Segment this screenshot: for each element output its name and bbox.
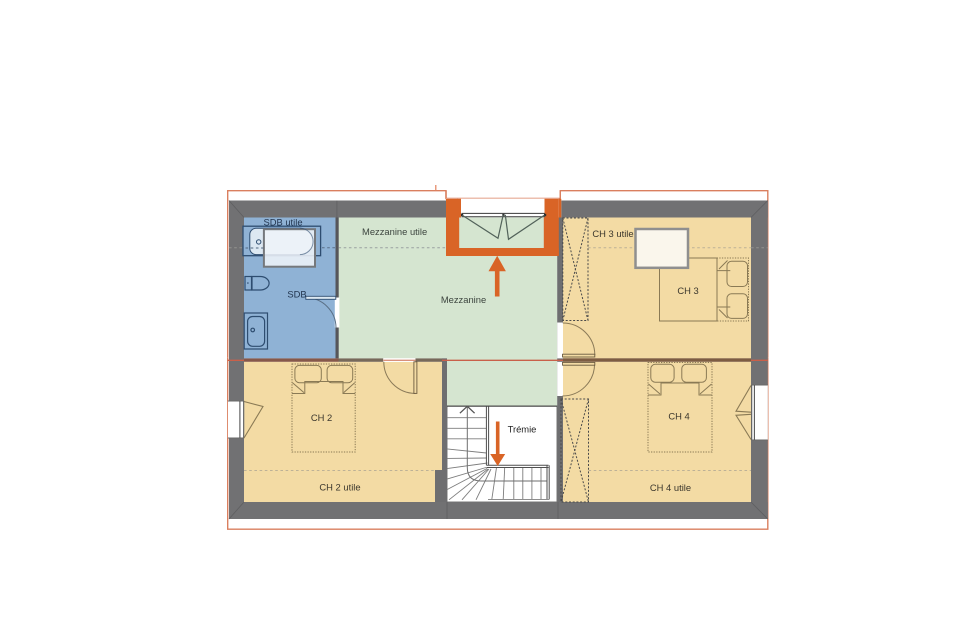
svg-text:CH 3 utile: CH 3 utile [592, 228, 633, 239]
svg-text:CH 4: CH 4 [668, 410, 689, 421]
svg-text:Trémie: Trémie [508, 424, 537, 435]
svg-text:Mezzanine utile: Mezzanine utile [362, 226, 427, 237]
svg-text:CH 3: CH 3 [677, 285, 698, 296]
svg-text:SDB utile: SDB utile [263, 216, 302, 227]
svg-text:CH 4 utile: CH 4 utile [650, 482, 691, 493]
svg-text:CH 2: CH 2 [311, 412, 332, 423]
svg-text:SDB: SDB [287, 288, 306, 299]
svg-text:Mezzanine: Mezzanine [441, 294, 486, 305]
svg-text:CH 2 utile: CH 2 utile [319, 481, 360, 492]
